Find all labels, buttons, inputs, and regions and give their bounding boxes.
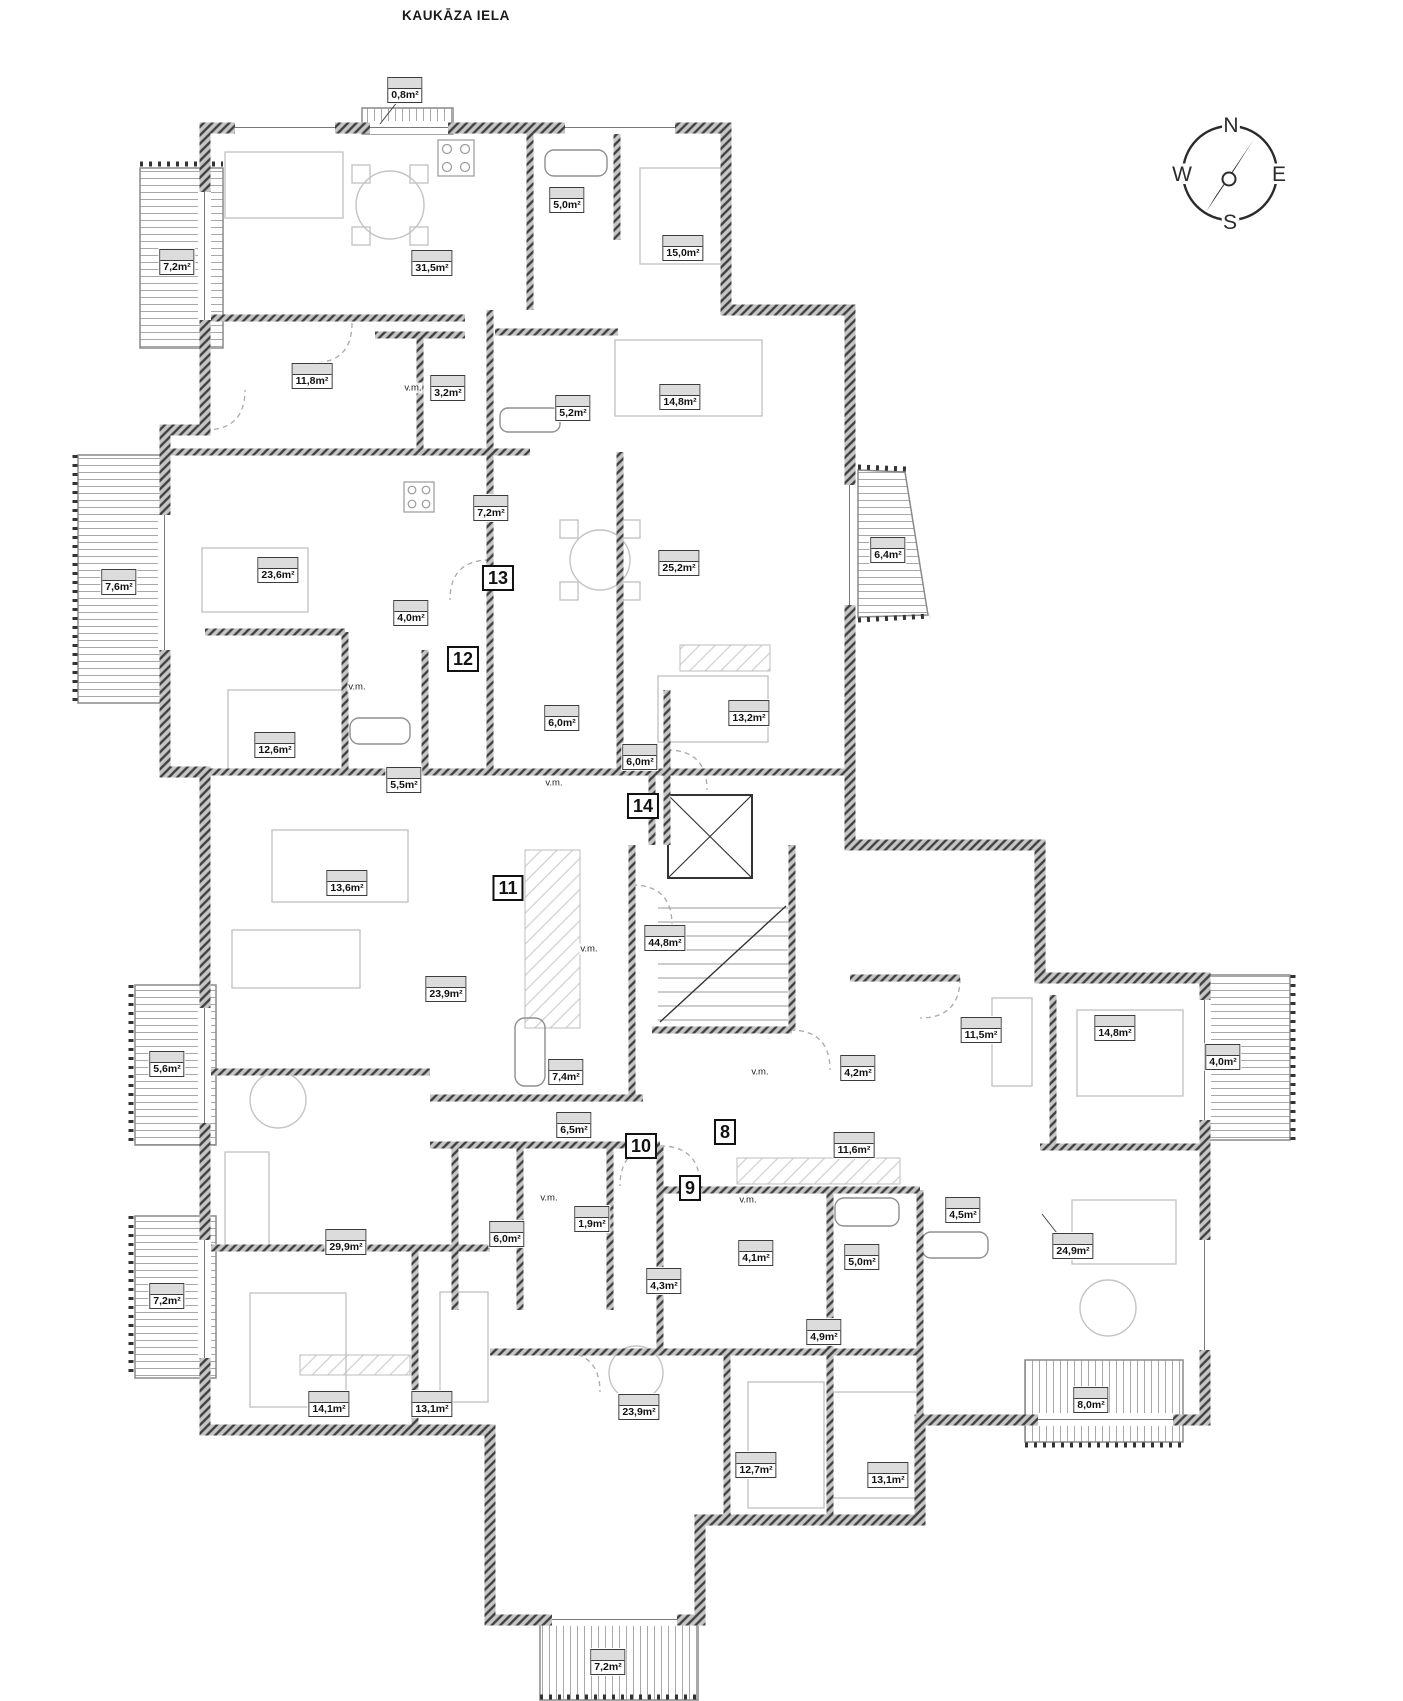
area-label-text: 5,0m² bbox=[550, 199, 583, 212]
room-area-label: 7,6m² bbox=[101, 569, 136, 595]
room-area-label: 4,2m² bbox=[840, 1055, 875, 1081]
apartment-number-badge: 8 bbox=[714, 1119, 736, 1145]
room-area-label: 13,1m² bbox=[867, 1462, 908, 1488]
area-label-gray-bar bbox=[394, 601, 427, 612]
area-label-gray-bar bbox=[150, 1284, 183, 1295]
room-area-label: 12,7m² bbox=[735, 1452, 776, 1478]
area-label-gray-bar bbox=[946, 1198, 979, 1209]
room-area-label: 4,0m² bbox=[1205, 1044, 1240, 1070]
apartment-number-badge: 11 bbox=[492, 875, 523, 901]
room-area-label: 5,0m² bbox=[844, 1244, 879, 1270]
room-area-label: 29,9m² bbox=[325, 1229, 366, 1255]
area-label-gray-bar bbox=[412, 251, 451, 262]
area-label-text: 14,8m² bbox=[660, 396, 699, 409]
area-label-text: 5,6m² bbox=[150, 1063, 183, 1076]
area-label-gray-bar bbox=[426, 977, 465, 988]
room-area-label: 13,2m² bbox=[728, 700, 769, 726]
area-label-gray-bar bbox=[490, 1222, 523, 1233]
apartment-number-badge: 10 bbox=[625, 1133, 657, 1159]
area-label-text: 0,8m² bbox=[388, 89, 421, 102]
area-label-text: 23,6m² bbox=[258, 569, 297, 582]
area-label-gray-bar bbox=[623, 745, 656, 756]
area-label-gray-bar bbox=[545, 706, 578, 717]
area-label-text: 4,5m² bbox=[946, 1209, 979, 1222]
area-label-text: 13,1m² bbox=[868, 1474, 907, 1487]
area-label-text: 6,0m² bbox=[545, 717, 578, 730]
area-label-gray-bar bbox=[1074, 1388, 1107, 1399]
area-label-text: 13,6m² bbox=[327, 882, 366, 895]
area-label-gray-bar bbox=[647, 1269, 680, 1280]
room-area-label: 15,0m² bbox=[662, 235, 703, 261]
vm-label: v.m. bbox=[539, 1193, 558, 1204]
vm-label: v.m. bbox=[403, 383, 422, 394]
area-label-gray-bar bbox=[388, 78, 421, 89]
room-area-label: 4,1m² bbox=[738, 1240, 773, 1266]
area-label-text: 7,2m² bbox=[591, 1661, 624, 1674]
room-area-label: 44,8m² bbox=[644, 925, 685, 951]
vm-label: v.m. bbox=[750, 1067, 769, 1078]
area-label-text: 6,0m² bbox=[623, 756, 656, 769]
area-label-gray-bar bbox=[659, 551, 698, 562]
area-label-gray-bar bbox=[663, 236, 702, 247]
room-area-label: 7,2m² bbox=[159, 249, 194, 275]
area-label-gray-bar bbox=[591, 1650, 624, 1661]
room-area-label: 12,6m² bbox=[254, 732, 295, 758]
area-label-gray-bar bbox=[841, 1056, 874, 1067]
area-label-gray-bar bbox=[871, 538, 904, 549]
room-area-label: 14,1m² bbox=[308, 1391, 349, 1417]
area-label-gray-bar bbox=[575, 1207, 608, 1218]
vm-label: v.m. bbox=[544, 778, 563, 789]
area-label-text: 12,7m² bbox=[736, 1464, 775, 1477]
area-label-gray-bar bbox=[868, 1463, 907, 1474]
area-label-text: 8,0m² bbox=[1074, 1399, 1107, 1412]
area-label-text: 13,1m² bbox=[412, 1403, 451, 1416]
area-label-text: 4,0m² bbox=[394, 612, 427, 625]
apartment-number-badge: 14 bbox=[627, 793, 659, 819]
room-area-label: 24,9m² bbox=[1052, 1233, 1093, 1259]
room-area-label: 6,0m² bbox=[622, 744, 657, 770]
room-area-label: 8,0m² bbox=[1073, 1387, 1108, 1413]
area-label-text: 11,8m² bbox=[293, 375, 332, 388]
area-label-gray-bar bbox=[619, 1395, 658, 1406]
room-area-label: 0,8m² bbox=[387, 77, 422, 103]
room-area-label: 25,2m² bbox=[658, 550, 699, 576]
area-label-gray-bar bbox=[729, 701, 768, 712]
room-area-label: 23,9m² bbox=[425, 976, 466, 1002]
area-label-text: 4,9m² bbox=[807, 1331, 840, 1344]
area-label-gray-bar bbox=[258, 558, 297, 569]
area-label-gray-bar bbox=[807, 1320, 840, 1331]
room-area-label: 23,9m² bbox=[618, 1394, 659, 1420]
room-area-label: 11,6m² bbox=[834, 1132, 875, 1158]
room-area-label: 7,2m² bbox=[590, 1649, 625, 1675]
area-label-text: 3,2m² bbox=[431, 387, 464, 400]
room-area-label: 11,5m² bbox=[961, 1017, 1002, 1043]
area-label-gray-bar bbox=[102, 570, 135, 581]
room-area-label: 14,8m² bbox=[1094, 1015, 1135, 1041]
area-label-text: 7,4m² bbox=[549, 1071, 582, 1084]
room-area-label: 5,0m² bbox=[549, 187, 584, 213]
area-label-text: 6,4m² bbox=[871, 549, 904, 562]
apartment-number-badge: 9 bbox=[679, 1175, 701, 1201]
area-label-text: 7,2m² bbox=[150, 1295, 183, 1308]
room-area-label: 13,6m² bbox=[326, 870, 367, 896]
area-label-gray-bar bbox=[326, 1230, 365, 1241]
area-label-gray-bar bbox=[160, 250, 193, 261]
area-label-text: 7,6m² bbox=[102, 581, 135, 594]
area-label-gray-bar bbox=[550, 188, 583, 199]
room-area-label: 6,0m² bbox=[544, 705, 579, 731]
vm-label: v.m. bbox=[738, 1195, 757, 1206]
area-label-text: 6,5m² bbox=[557, 1124, 590, 1137]
area-label-gray-bar bbox=[556, 396, 589, 407]
area-label-gray-bar bbox=[1053, 1234, 1092, 1245]
room-area-label: 6,4m² bbox=[870, 537, 905, 563]
room-area-label: 7,2m² bbox=[473, 495, 508, 521]
vm-label: v.m. bbox=[579, 944, 598, 955]
room-area-label: 11,8m² bbox=[292, 363, 333, 389]
room-area-label: 6,5m² bbox=[556, 1112, 591, 1138]
area-label-text: 11,6m² bbox=[835, 1144, 874, 1157]
area-label-gray-bar bbox=[1206, 1045, 1239, 1056]
apartment-number-badge: 13 bbox=[482, 565, 514, 591]
area-label-text: 13,2m² bbox=[729, 712, 768, 725]
area-label-text: 29,9m² bbox=[326, 1241, 365, 1254]
area-label-text: 14,8m² bbox=[1095, 1027, 1134, 1040]
area-label-gray-bar bbox=[845, 1245, 878, 1256]
area-label-gray-bar bbox=[309, 1392, 348, 1403]
area-label-text: 44,8m² bbox=[645, 937, 684, 950]
area-label-text: 5,2m² bbox=[556, 407, 589, 420]
area-label-text: 4,3m² bbox=[647, 1280, 680, 1293]
room-area-label: 5,5m² bbox=[386, 767, 421, 793]
apartment-number-badge: 12 bbox=[447, 646, 479, 672]
area-label-gray-bar bbox=[474, 496, 507, 507]
area-label-text: 7,2m² bbox=[474, 507, 507, 520]
area-label-gray-bar bbox=[1095, 1016, 1134, 1027]
area-label-gray-bar bbox=[645, 926, 684, 937]
area-label-gray-bar bbox=[412, 1392, 451, 1403]
area-label-text: 11,5m² bbox=[962, 1029, 1001, 1042]
area-label-gray-bar bbox=[660, 385, 699, 396]
area-label-text: 7,2m² bbox=[160, 261, 193, 274]
area-label-text: 5,5m² bbox=[387, 779, 420, 792]
area-label-gray-bar bbox=[255, 733, 294, 744]
room-area-label: 13,1m² bbox=[411, 1391, 452, 1417]
area-label-gray-bar bbox=[557, 1113, 590, 1124]
room-area-label: 4,5m² bbox=[945, 1197, 980, 1223]
area-label-text: 4,2m² bbox=[841, 1067, 874, 1080]
room-area-label: 31,5m² bbox=[411, 250, 452, 276]
area-label-gray-bar bbox=[327, 871, 366, 882]
area-label-gray-bar bbox=[293, 364, 332, 375]
area-label-gray-bar bbox=[835, 1133, 874, 1144]
area-label-text: 12,6m² bbox=[255, 744, 294, 757]
area-label-text: 5,0m² bbox=[845, 1256, 878, 1269]
area-label-text: 6,0m² bbox=[490, 1233, 523, 1246]
area-label-text: 1,9m² bbox=[575, 1218, 608, 1231]
room-area-label: 6,0m² bbox=[489, 1221, 524, 1247]
room-area-label: 5,2m² bbox=[555, 395, 590, 421]
area-label-text: 31,5m² bbox=[412, 262, 451, 275]
room-area-label: 4,0m² bbox=[393, 600, 428, 626]
room-area-label: 4,9m² bbox=[806, 1319, 841, 1345]
area-label-text: 4,0m² bbox=[1206, 1056, 1239, 1069]
area-label-gray-bar bbox=[150, 1052, 183, 1063]
room-area-label: 7,2m² bbox=[149, 1283, 184, 1309]
area-label-gray-bar bbox=[387, 768, 420, 779]
area-label-text: 15,0m² bbox=[663, 247, 702, 260]
room-area-label: 23,6m² bbox=[257, 557, 298, 583]
area-label-gray-bar bbox=[431, 376, 464, 387]
room-area-label: 7,4m² bbox=[548, 1059, 583, 1085]
area-label-text: 4,1m² bbox=[739, 1252, 772, 1265]
room-area-label: 3,2m² bbox=[430, 375, 465, 401]
area-label-text: 14,1m² bbox=[309, 1403, 348, 1416]
area-label-text: 25,2m² bbox=[659, 562, 698, 575]
floor-plan: KAUKĀZA IELA bbox=[0, 0, 1403, 1701]
area-label-text: 23,9m² bbox=[619, 1406, 658, 1419]
room-area-label: 5,6m² bbox=[149, 1051, 184, 1077]
area-label-gray-bar bbox=[736, 1453, 775, 1464]
room-area-label: 1,9m² bbox=[574, 1206, 609, 1232]
vm-label: v.m. bbox=[347, 682, 366, 693]
labels-layer: 0,8m² 7,2m² 31,5m² 5,0m² 15,0m² 11,8m² 3… bbox=[0, 0, 1403, 1701]
area-label-text: 23,9m² bbox=[426, 988, 465, 1001]
area-label-text: 24,9m² bbox=[1053, 1245, 1092, 1258]
area-label-gray-bar bbox=[962, 1018, 1001, 1029]
area-label-gray-bar bbox=[739, 1241, 772, 1252]
room-area-label: 14,8m² bbox=[659, 384, 700, 410]
area-label-gray-bar bbox=[549, 1060, 582, 1071]
room-area-label: 4,3m² bbox=[646, 1268, 681, 1294]
